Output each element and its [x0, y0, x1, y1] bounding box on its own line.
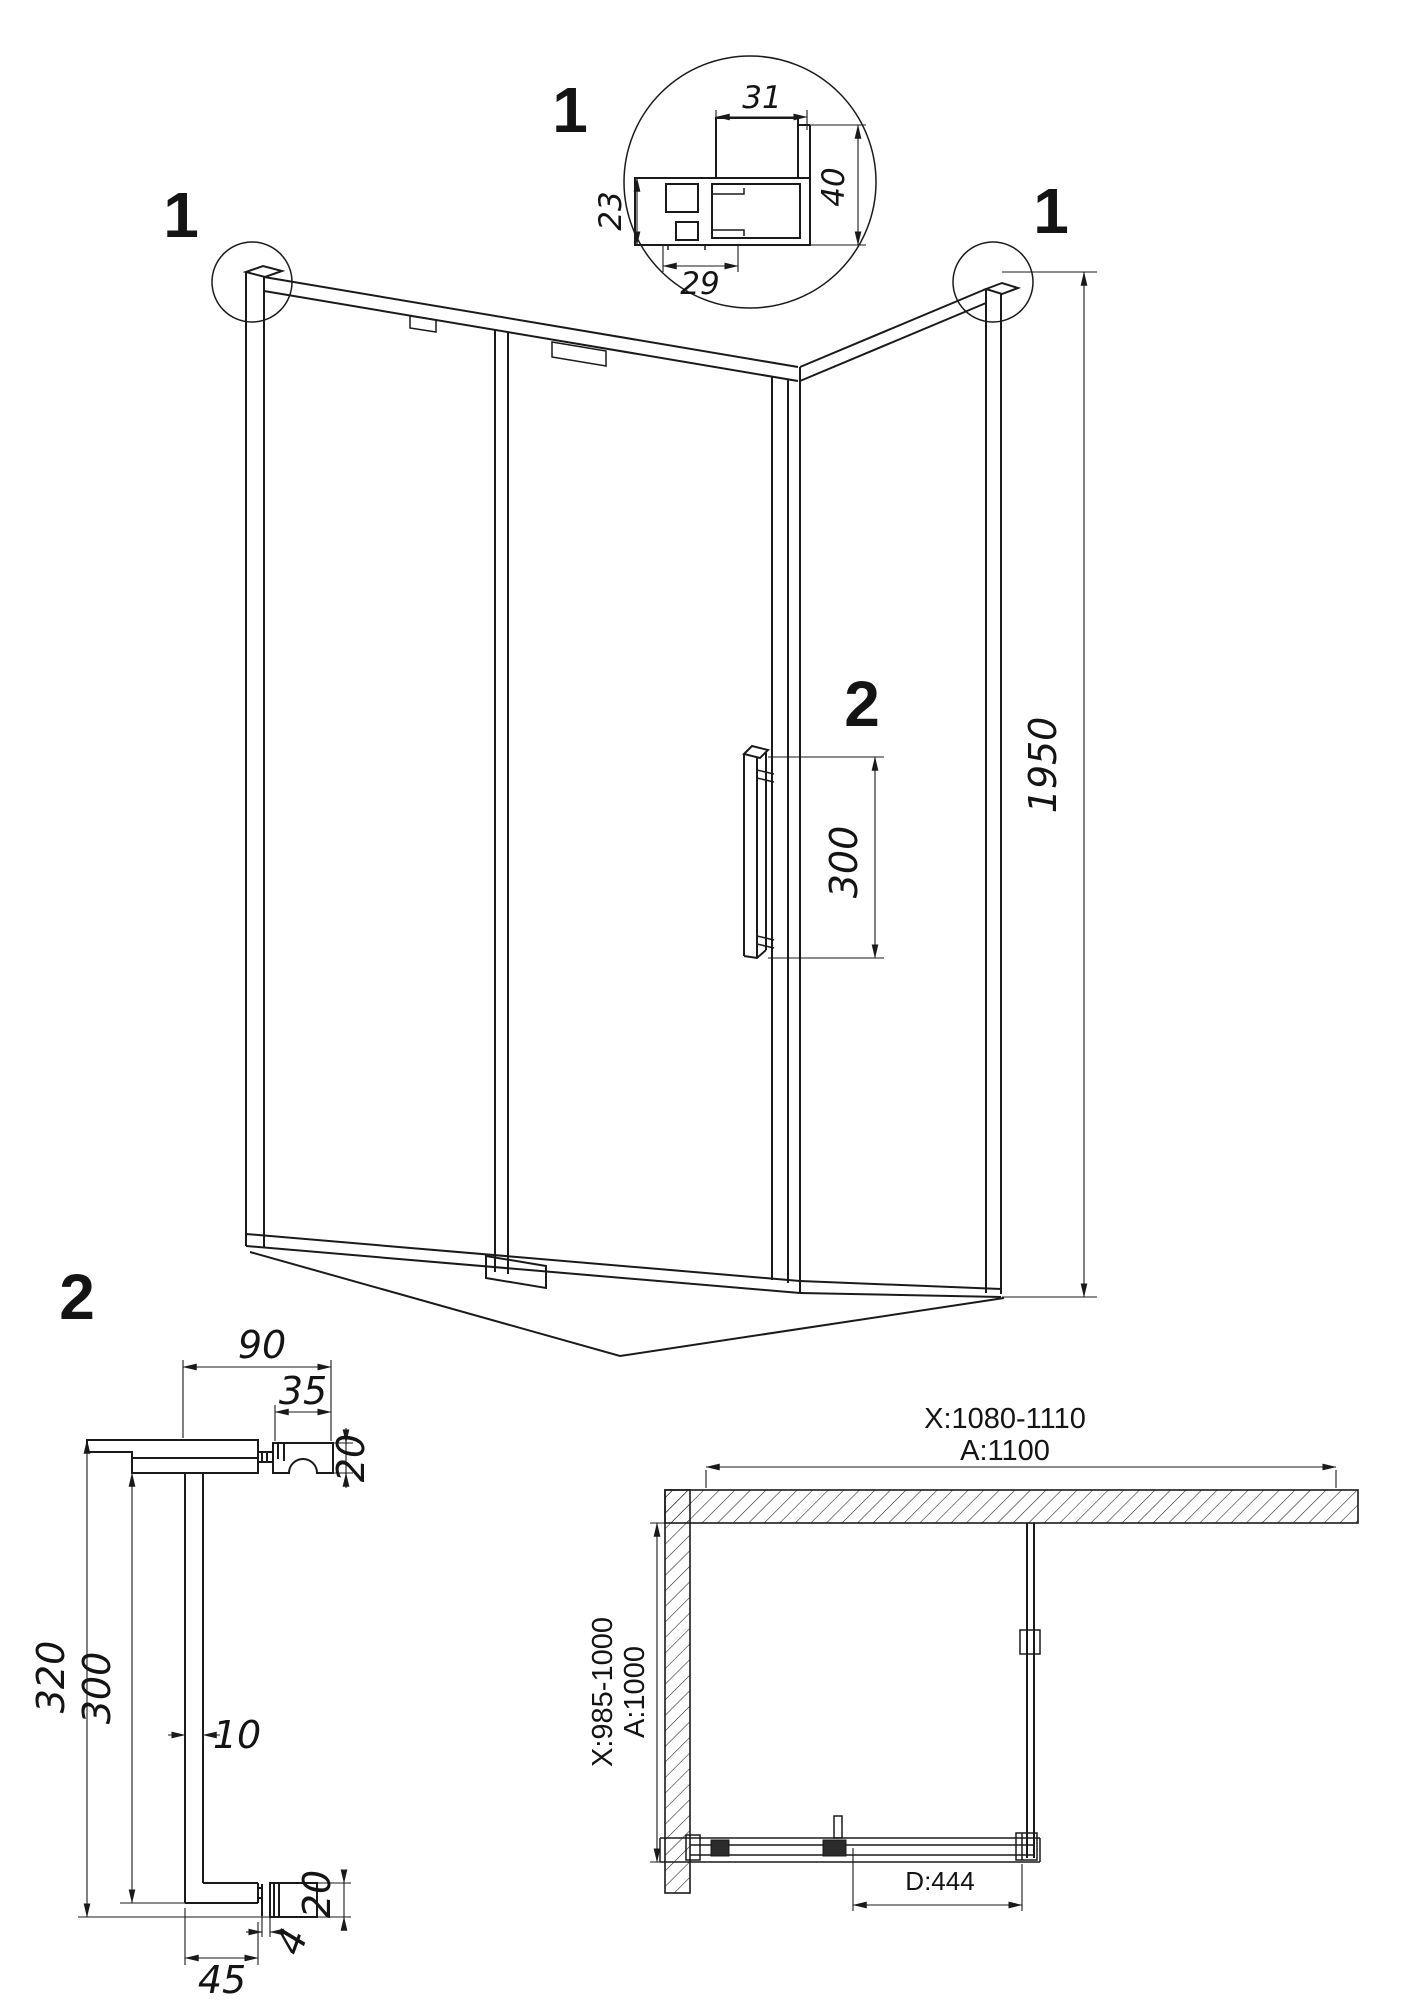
dim-300-text: 300: [822, 826, 866, 899]
corner-circle-left: [212, 242, 292, 322]
handle-top-knob: [273, 1443, 333, 1473]
handle-top-arm: [87, 1440, 258, 1473]
dim-4-extensions: [262, 1905, 270, 1937]
main-3d-view: 1 1 2 300 19: [163, 175, 1097, 1356]
dim-320-300-bottom-extensions: [78, 1903, 270, 1917]
plan-glass-bracket: [1020, 1630, 1040, 1654]
plan-depth-adjust-text: X:985-1000: [587, 1617, 619, 1767]
tray-edges: [250, 1252, 1004, 1356]
handle-detail-dimensions: 90 35 20 320 300 10 20 4: [29, 1323, 373, 2000]
dim-23-text: 23: [593, 191, 629, 230]
plan-top-wall: [665, 1490, 1358, 1523]
door-handle-plan-tab: [834, 1816, 842, 1838]
handle-vertical-arm: [185, 1473, 203, 1903]
roller-carriage-right: [823, 1840, 846, 1856]
side-bottom-rail: [800, 1281, 1001, 1297]
dim-90-text: 90: [238, 1323, 286, 1367]
plan-width-text: A:1100: [960, 1435, 1050, 1467]
corner-circle-right: [953, 242, 1033, 322]
track-end-caps: [686, 1833, 1037, 1860]
dim-320-text: 320: [29, 1641, 73, 1714]
plan-depth-text: A:1000: [619, 1646, 651, 1738]
shower-enclosure-drawing: 1 31 23 29 40 1 1: [0, 0, 1414, 2000]
detail-1-callout: 1 31 23 29 40: [552, 56, 876, 308]
dim-300-inner-text: 300: [75, 1652, 119, 1725]
profile-hooks: [712, 188, 744, 236]
dim-20-bottom-text: 20: [295, 1870, 339, 1918]
corner-label-left: 1: [163, 179, 199, 251]
door-handle-3d: [744, 746, 774, 958]
dim-4-text: 4: [267, 1923, 317, 1961]
dim-40-text: 40: [816, 167, 852, 206]
plan-door-width-text: D:444: [905, 1866, 974, 1896]
handle-bottom-arm: [185, 1883, 258, 1903]
handle-top-connector: [258, 1452, 273, 1462]
dim-35-text: 35: [279, 1369, 327, 1413]
handle-bar: [744, 746, 768, 958]
left-post: [246, 266, 282, 1248]
dim-29-text: 29: [680, 266, 719, 302]
detail-1-label: 1: [552, 74, 588, 146]
dim-31-text: 31: [742, 80, 781, 116]
door-right-stile: [772, 377, 788, 1283]
plan-door-track: [660, 1816, 1040, 1862]
roller-carriage-left: [711, 1840, 729, 1856]
enclosure-frame: [246, 266, 1018, 1356]
profile-left-window: [666, 184, 698, 240]
handle-detail-geometry: [87, 1440, 333, 1917]
plan-width-adjust-text: X:1080-1110: [924, 1403, 1086, 1435]
profile-cross-section: [635, 118, 810, 250]
dim-45-text: 45: [198, 1958, 246, 2000]
plan-view: X:1080-1110 A:1100 X:985-1000 A:1000 D:4…: [587, 1403, 1358, 1911]
handle-detail-view: 2 90 35 20 320 300: [29, 1261, 373, 2000]
profile-top-box: [716, 118, 810, 178]
dim-1950-text: 1950: [1021, 717, 1065, 814]
handle-bottom-connector: [258, 1883, 270, 1917]
detail-1-dimensions: 31 23 29 40: [593, 80, 866, 302]
corner-label-right: 1: [1033, 175, 1069, 247]
technical-drawing-page: 1 31 23 29 40 1 1: [0, 0, 1414, 2000]
middle-stile: [495, 330, 508, 1274]
dim-20-top-text: 20: [329, 1434, 373, 1482]
detail-2-label: 2: [59, 1261, 95, 1333]
right-post: [986, 283, 1018, 1294]
dim-10-text: 10: [213, 1713, 261, 1757]
plan-side-glass: [1027, 1523, 1034, 1858]
plan-width-extensions: [706, 1470, 1336, 1488]
plan-left-wall: [665, 1490, 690, 1893]
profile-body-outline: [635, 178, 810, 245]
handle-callout-label: 2: [844, 668, 880, 740]
